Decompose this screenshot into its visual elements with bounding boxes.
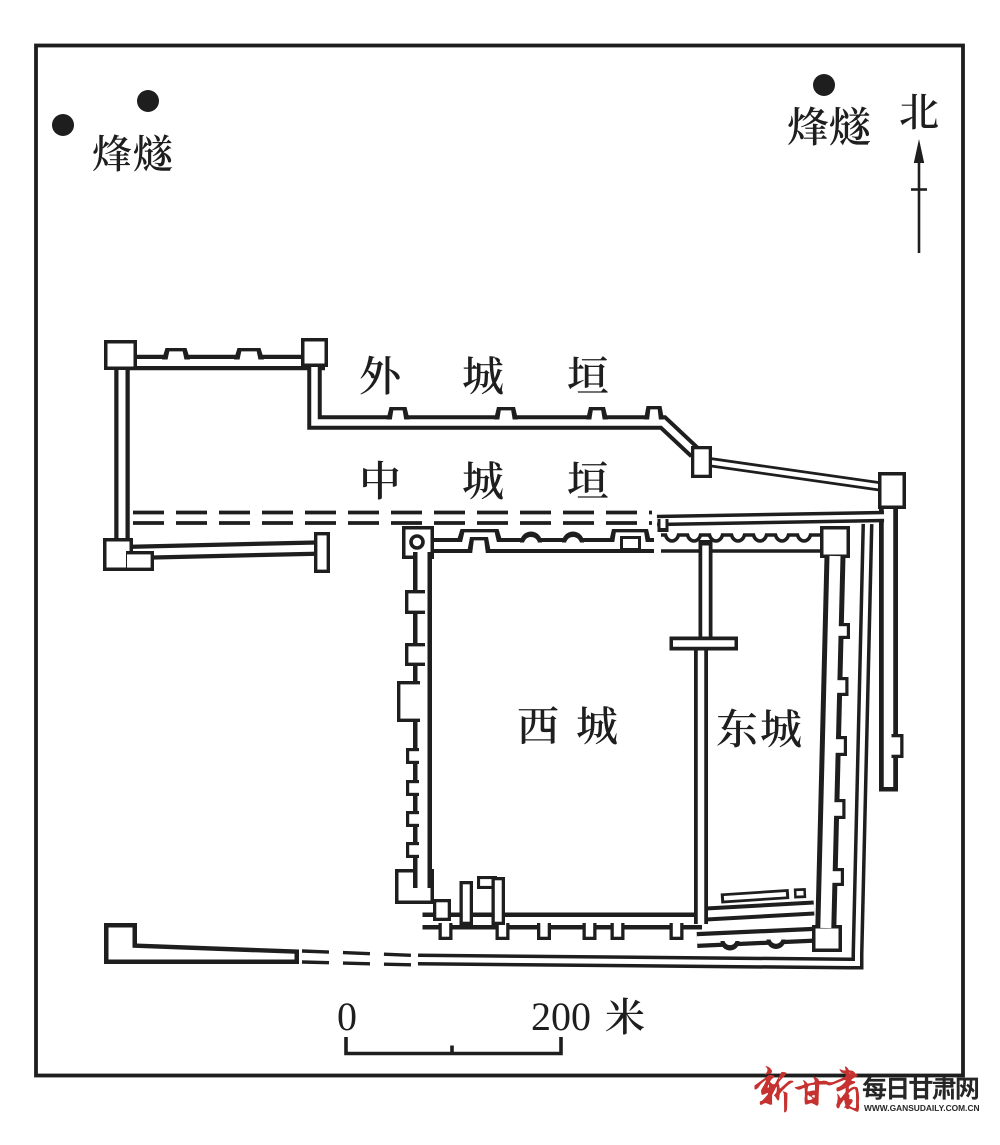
- svg-text:0: 0: [337, 994, 357, 1039]
- svg-text:200: 200: [531, 994, 591, 1039]
- svg-text:WWW.GANSUDAILY.COM.CN: WWW.GANSUDAILY.COM.CN: [864, 1103, 980, 1113]
